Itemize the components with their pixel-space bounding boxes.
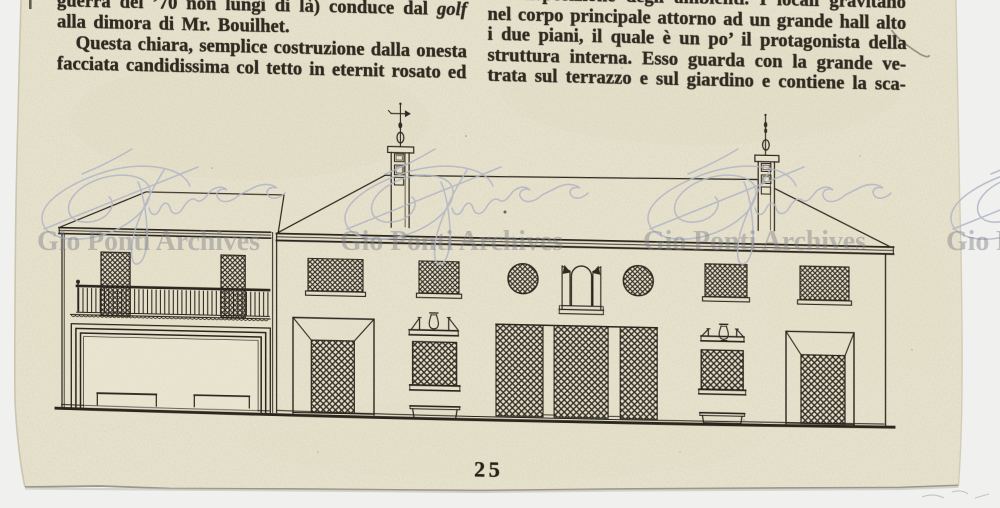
svg-text:Gio Ponti Archives: Gio Ponti Archives <box>37 226 260 257</box>
svg-text:Gio Ponti Archives: Gio Ponti Archives <box>340 226 563 257</box>
svg-text:Gio Ponti Archives: Gio Ponti Archives <box>946 226 1000 257</box>
svg-text:Gio Ponti Archives: Gio Ponti Archives <box>643 226 866 257</box>
